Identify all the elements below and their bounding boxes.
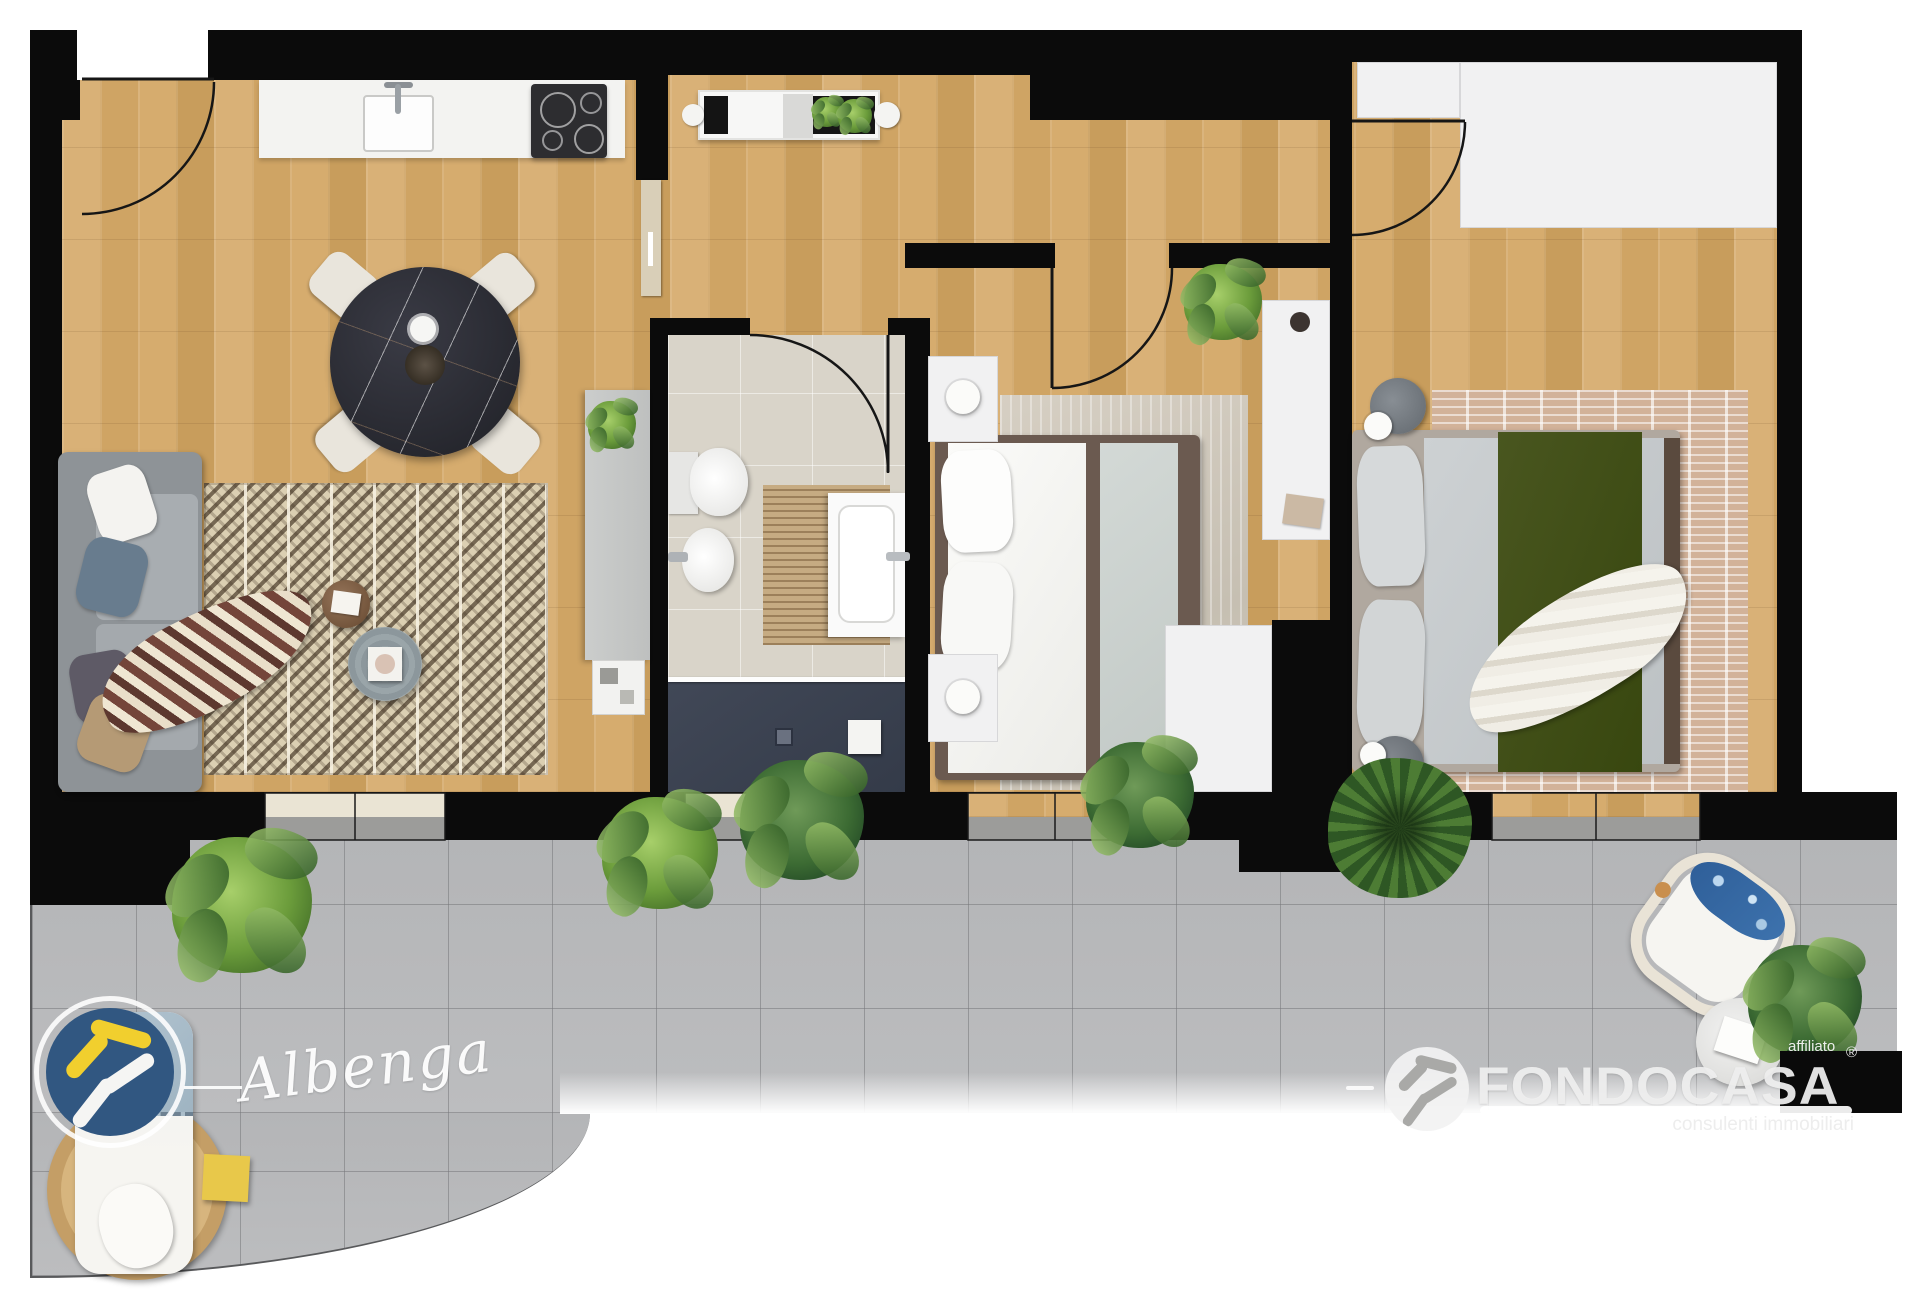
- terrace-plant-monstera: [740, 760, 864, 880]
- bedroom1-door-arc: [1052, 268, 1172, 388]
- sideboard-plant: [588, 401, 636, 449]
- logo-f-stroke-white: [70, 1076, 118, 1131]
- terrace-plant: [602, 797, 718, 909]
- fondocasa-logo-circle: [1385, 1047, 1469, 1131]
- fondocasa-tagline: consulenti immobiliari: [1652, 1114, 1854, 1136]
- terrace-plant: [172, 837, 312, 973]
- logo-f-stroke: [1401, 1092, 1431, 1129]
- terrace-plant-palm: [1328, 758, 1472, 898]
- floor-plan-render: Albenga affiliato FONDOCASA ® consulenti…: [0, 0, 1920, 1290]
- terrace-plant: [1086, 742, 1194, 848]
- logo-f-stroke-yellow: [63, 1031, 111, 1082]
- entrance-door-arc: [82, 82, 214, 214]
- watermark-connector-line: [184, 1086, 242, 1089]
- fondocasa-affiliato-label: affiliato: [1788, 1038, 1835, 1055]
- bathroom-door-arc: [750, 335, 888, 473]
- bedroom2-door-arc: [1352, 122, 1465, 235]
- agency-logo-circle: [46, 1008, 174, 1136]
- side-cube-table: [202, 1154, 250, 1202]
- fondocasa-registered-symbol: ®: [1846, 1044, 1857, 1061]
- fondocasa-connector-dash: [1346, 1086, 1374, 1090]
